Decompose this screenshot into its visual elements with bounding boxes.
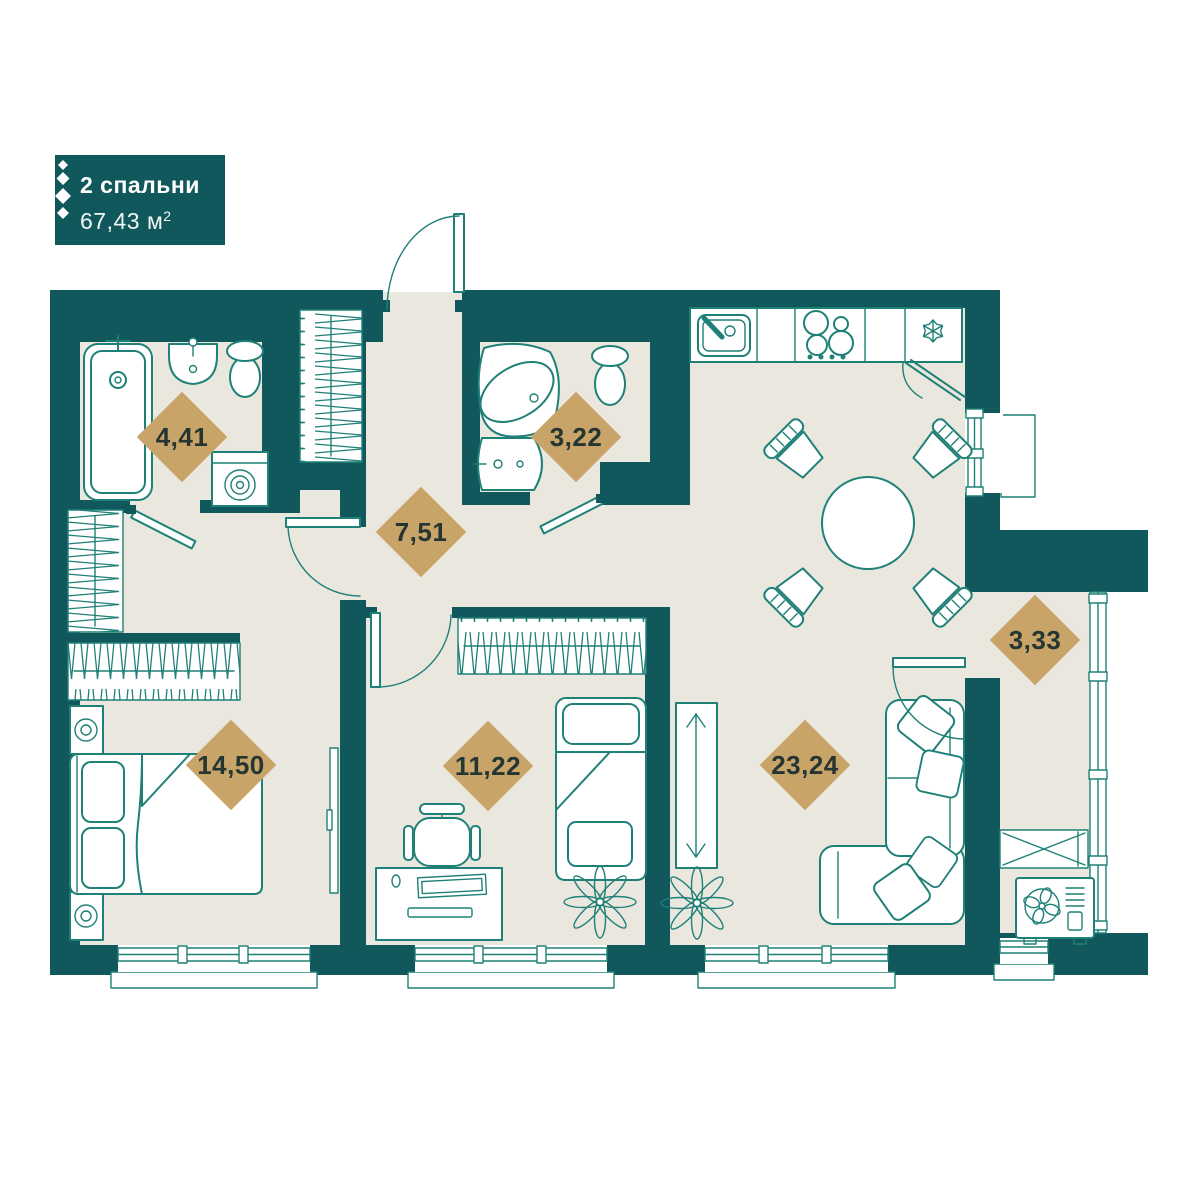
closet [300, 310, 362, 462]
nightstand [70, 706, 103, 754]
bed-single [556, 698, 646, 880]
bedrooms-label: 2 спальни [80, 172, 200, 198]
monitor [418, 874, 487, 898]
floor-plan: 4,41 3,22 7,51 14,50 11,22 23,24 3,33 [0, 0, 1200, 1200]
room-area-label: 14,50 [197, 750, 265, 780]
wardrobe [68, 643, 240, 700]
washing-machine [212, 452, 268, 506]
room-area-label: 11,22 [455, 751, 521, 781]
nightstand [70, 892, 103, 940]
window [408, 945, 614, 988]
wardrobe [458, 618, 646, 674]
total-area-label: 67,43 м2 [80, 208, 172, 234]
clothes-rail [676, 703, 717, 868]
window [111, 945, 317, 988]
room-area-label: 23,24 [771, 750, 839, 780]
desk [376, 868, 502, 940]
sink [474, 438, 542, 490]
drying-rack [1000, 830, 1088, 868]
bathtub [84, 336, 152, 500]
sofa-pillow [915, 749, 965, 799]
room-area-label: 3,22 [550, 422, 603, 452]
room-area-label: 7,51 [395, 517, 448, 547]
window [965, 409, 1035, 497]
toilet [227, 341, 263, 397]
room-area-label: 3,33 [1009, 625, 1062, 655]
sink [169, 338, 217, 384]
floor-plan-page: 4,41 3,22 7,51 14,50 11,22 23,24 3,33 [0, 0, 1200, 1200]
header-card: 2 спальни 67,43 м2 [55, 155, 225, 245]
entrance-opening [383, 292, 462, 342]
ac-unit [1016, 878, 1094, 944]
toilet [592, 346, 628, 405]
room-area-label: 4,41 [156, 422, 209, 452]
closet [68, 510, 123, 632]
window [698, 945, 895, 988]
